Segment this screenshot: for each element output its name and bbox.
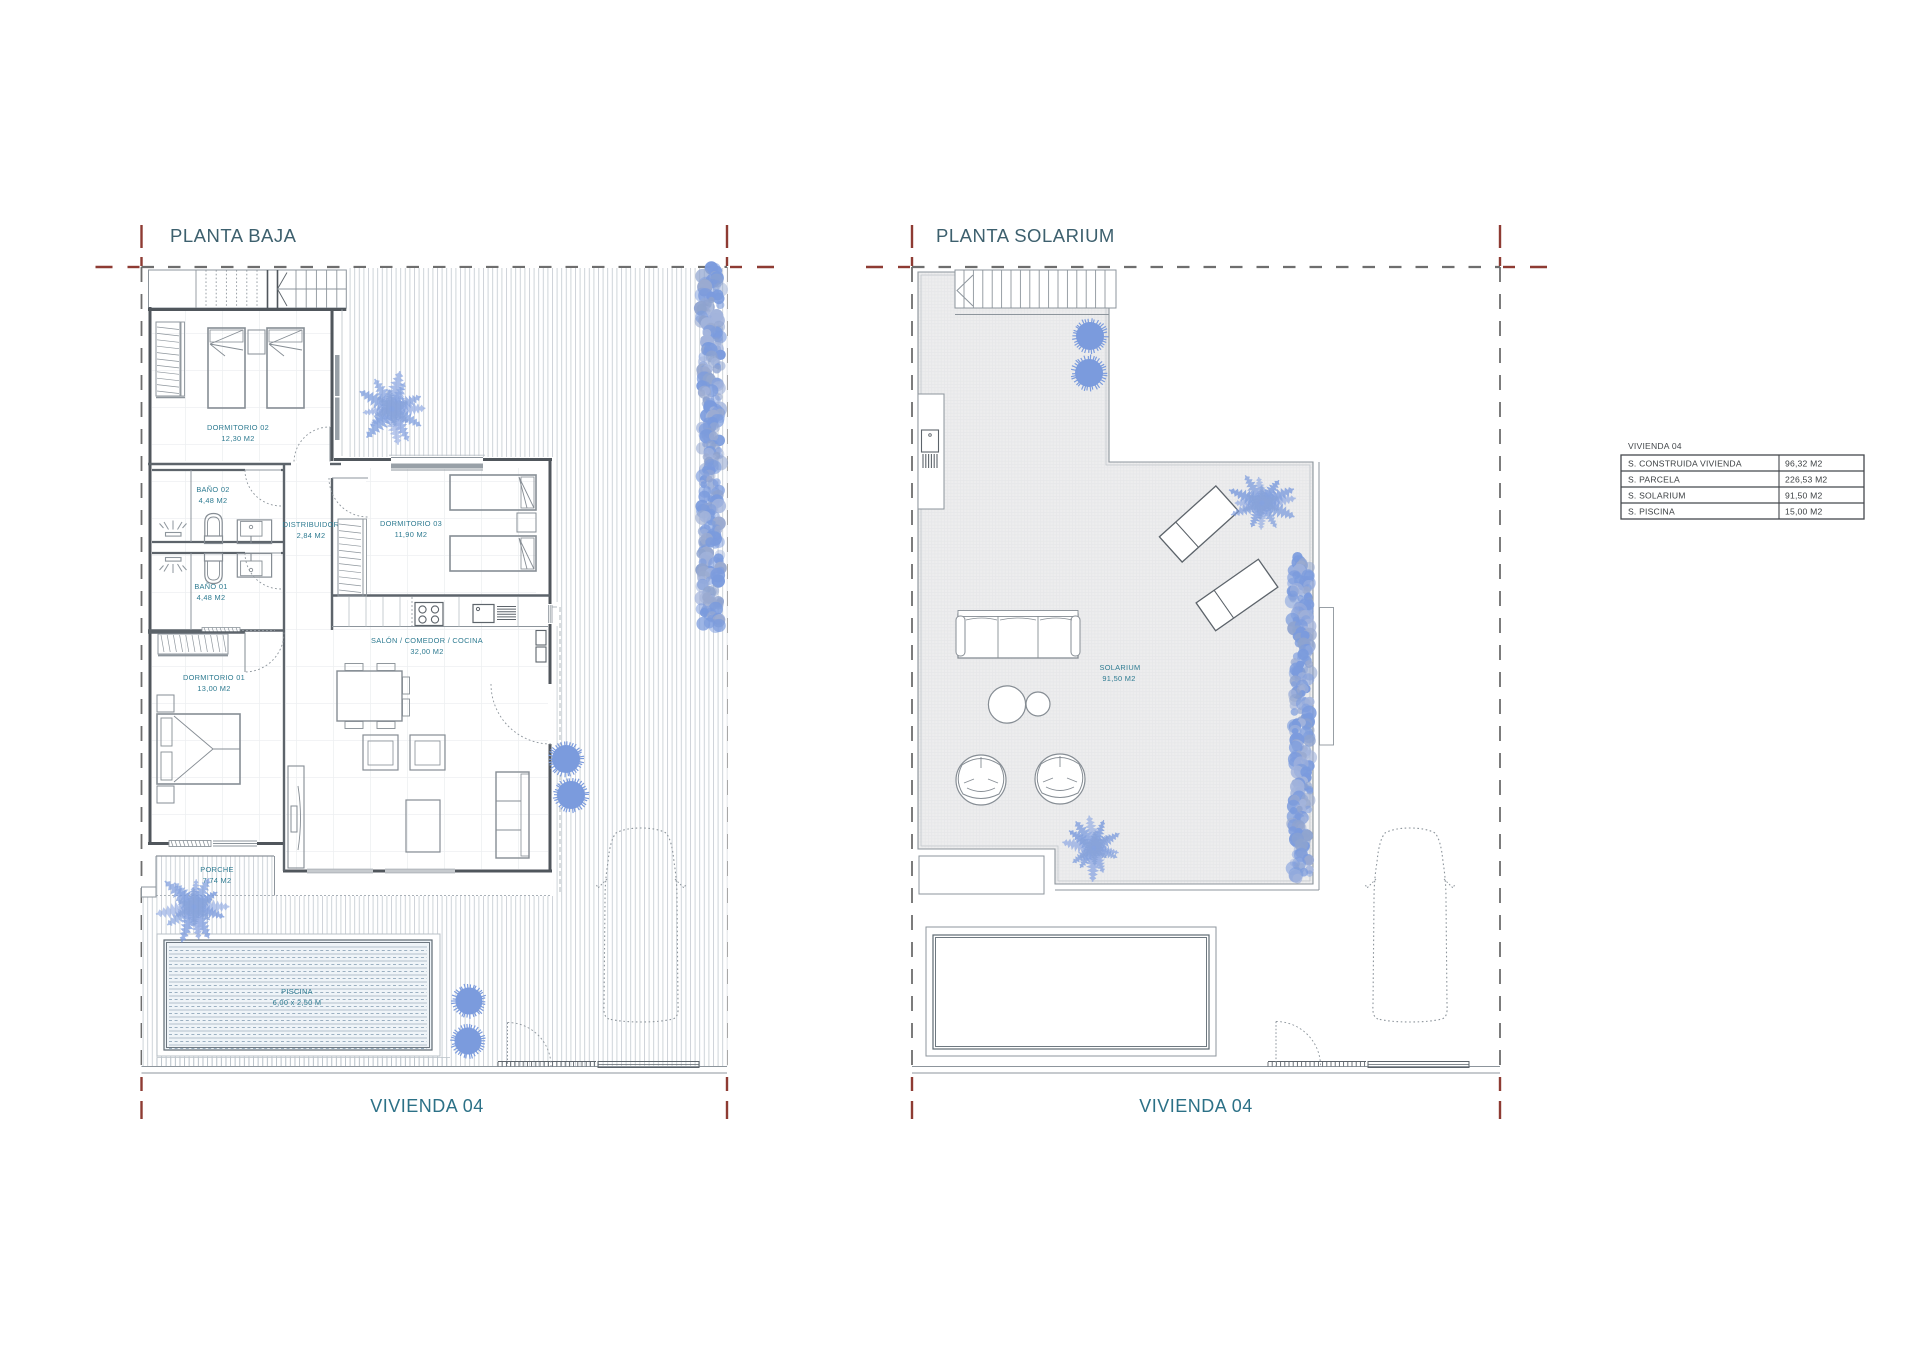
svg-text:PLANTA BAJA: PLANTA BAJA: [170, 225, 297, 246]
svg-text:12,30 M2: 12,30 M2: [221, 434, 254, 443]
svg-text:S. PARCELA: S. PARCELA: [1628, 475, 1680, 485]
svg-text:VIVIENDA 04: VIVIENDA 04: [370, 1096, 484, 1116]
svg-text:BAÑO 01: BAÑO 01: [194, 582, 227, 591]
svg-text:SOLARIUM: SOLARIUM: [1099, 663, 1140, 672]
svg-text:PISCINA: PISCINA: [281, 987, 313, 996]
svg-text:4,48 M2: 4,48 M2: [199, 496, 228, 505]
svg-text:S. SOLARIUM: S. SOLARIUM: [1628, 491, 1686, 501]
svg-text:13,00 M2: 13,00 M2: [197, 684, 230, 693]
svg-text:32,00 M2: 32,00 M2: [410, 647, 443, 656]
svg-text:S. CONSTRUIDA VIVIENDA: S. CONSTRUIDA VIVIENDA: [1628, 459, 1742, 469]
svg-text:VIVIENDA 04: VIVIENDA 04: [1139, 1096, 1253, 1116]
svg-text:VIVIENDA 04: VIVIENDA 04: [1628, 441, 1682, 451]
svg-text:15,00 M2: 15,00 M2: [1785, 507, 1822, 517]
svg-text:PLANTA SOLARIUM: PLANTA SOLARIUM: [936, 225, 1115, 246]
svg-text:6,00 x 2,50 M: 6,00 x 2,50 M: [273, 998, 322, 1007]
svg-text:4,48 M2: 4,48 M2: [197, 593, 226, 602]
svg-text:226,53 M2: 226,53 M2: [1785, 475, 1827, 485]
svg-text:SALÓN / COMEDOR / COCINA: SALÓN / COMEDOR / COCINA: [371, 636, 483, 645]
svg-text:BAÑO 02: BAÑO 02: [196, 485, 229, 494]
svg-text:DISTRIBUIDOR: DISTRIBUIDOR: [283, 520, 340, 529]
svg-text:S. PISCINA: S. PISCINA: [1628, 507, 1675, 517]
svg-text:PORCHE: PORCHE: [200, 865, 233, 874]
svg-text:11,90 M2: 11,90 M2: [395, 530, 428, 539]
svg-text:91,50 M2: 91,50 M2: [1785, 491, 1822, 501]
svg-text:DORMITORIO 02: DORMITORIO 02: [207, 423, 269, 432]
svg-text:2,84 M2: 2,84 M2: [297, 531, 326, 540]
svg-text:91,50 M2: 91,50 M2: [1102, 674, 1135, 683]
svg-text:DORMITORIO 03: DORMITORIO 03: [380, 519, 442, 528]
svg-text:DORMITORIO 01: DORMITORIO 01: [183, 673, 245, 682]
svg-text:96,32 M2: 96,32 M2: [1785, 459, 1822, 469]
